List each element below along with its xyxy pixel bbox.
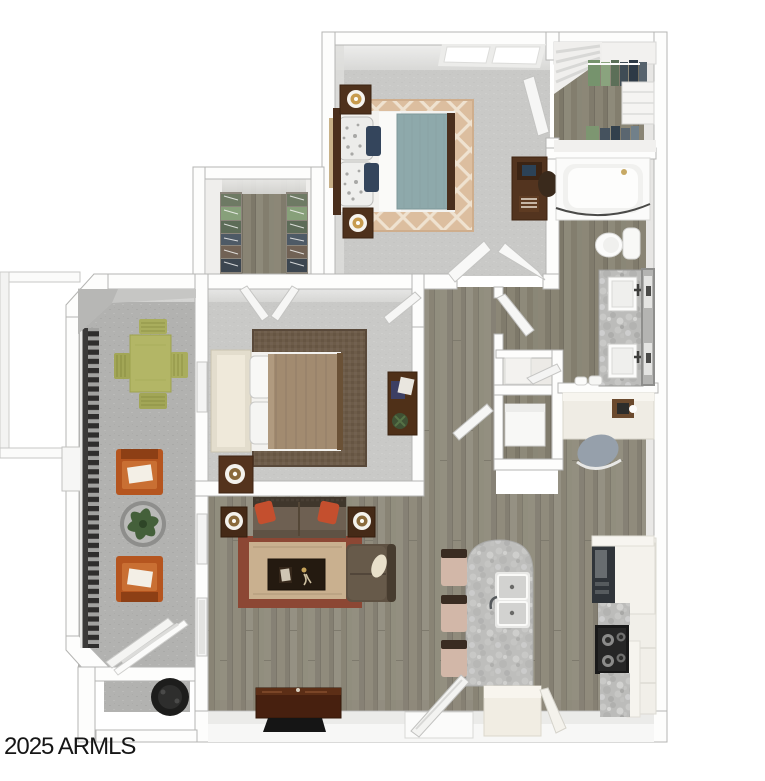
- svg-text:2025 ARMLS: 2025 ARMLS: [4, 733, 135, 760]
